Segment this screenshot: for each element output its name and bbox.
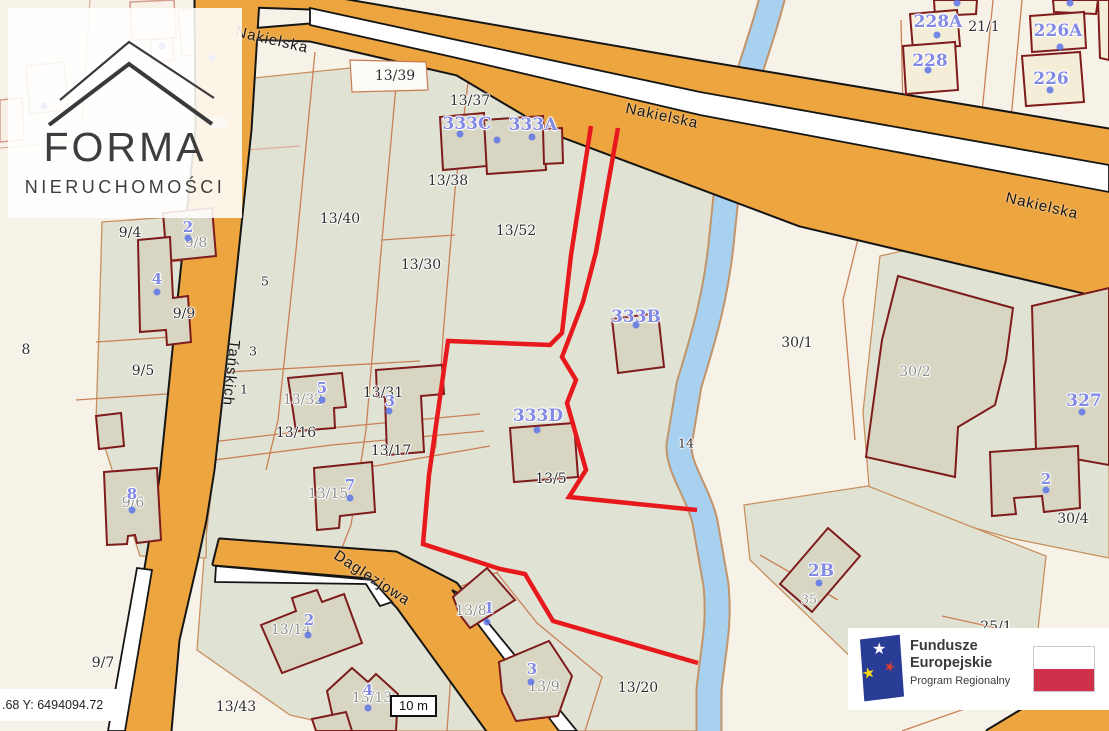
eu-banner-title: FunduszeEuropejskie bbox=[910, 638, 992, 671]
forma-logo-subtitle: NIERUCHOMOŚCI bbox=[8, 177, 242, 198]
scale-bar: 10 m bbox=[390, 695, 437, 717]
forma-logo: FORMA NIERUCHOMOŚCI bbox=[8, 8, 242, 218]
eu-funds-banner: ★ ★ ★ FunduszeEuropejskie Program Region… bbox=[848, 628, 1109, 710]
eu-star-white-icon: ★ bbox=[872, 642, 886, 658]
forma-roof-icon bbox=[8, 8, 242, 126]
eu-banner-subtitle: Program Regionalny bbox=[910, 675, 1010, 687]
building-layer-cream bbox=[903, 0, 1109, 106]
poland-flag-icon bbox=[1033, 646, 1095, 692]
map-viewport[interactable]: 13/3913/3713/3813/4013/5213/3030/130/230… bbox=[0, 0, 1109, 731]
parcel-pocket-13-39 bbox=[350, 60, 428, 92]
coordinates-readout: .68 Y: 6494094.72 bbox=[0, 689, 118, 721]
forma-logo-title: FORMA bbox=[8, 124, 242, 171]
